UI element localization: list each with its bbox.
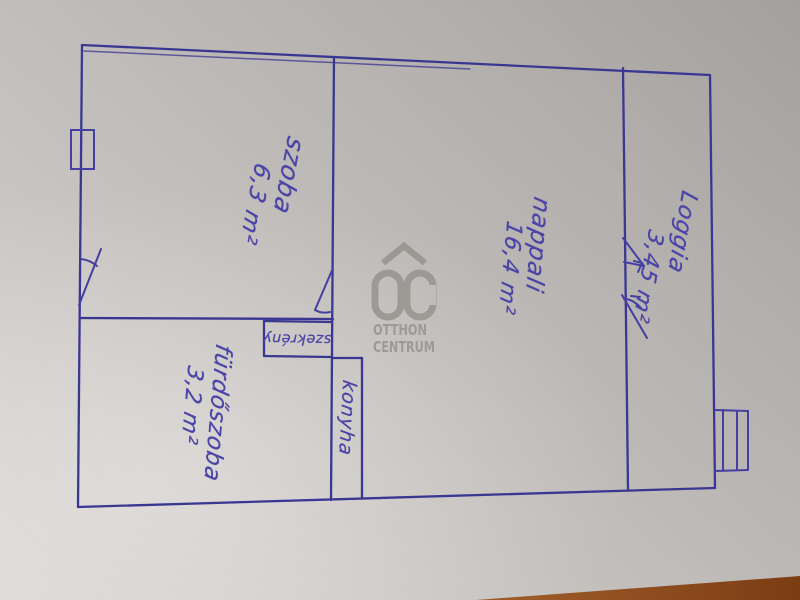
outer-wall-top [82, 45, 710, 75]
room-label-nappali: nappali 16,4 m² [492, 188, 556, 323]
room-label-konyha: konyha [334, 378, 360, 457]
wall-nappali-loggia [623, 68, 628, 490]
floor-plan-photo: szoba 6,3 m² nappali 16,4 m² Loggia 3,45… [0, 0, 800, 600]
logo-line-otthon: OTTHON [373, 321, 427, 339]
otthon-centrum-logo: OTTHON CENTRUM [366, 240, 466, 358]
window-left-wall [71, 130, 94, 169]
window-right-wall [715, 410, 748, 471]
wall-szoba-furdoszoba [80, 318, 333, 319]
door-szoba-nappali [315, 268, 333, 313]
outer-wall-left [78, 45, 82, 507]
logo-monogram [375, 273, 436, 317]
door-szoba-left [79, 249, 101, 305]
room-name: konyha [334, 379, 360, 458]
wall-szoba-nappali [331, 57, 334, 500]
outer-wall-right [710, 75, 715, 488]
roof-icon [383, 246, 425, 263]
outer-wall-bottom [78, 488, 715, 507]
logo-line-centrum: CENTRUM [373, 338, 435, 356]
room-name: szekrény [262, 330, 331, 347]
room-label-szekreny: szekrény [262, 329, 331, 347]
